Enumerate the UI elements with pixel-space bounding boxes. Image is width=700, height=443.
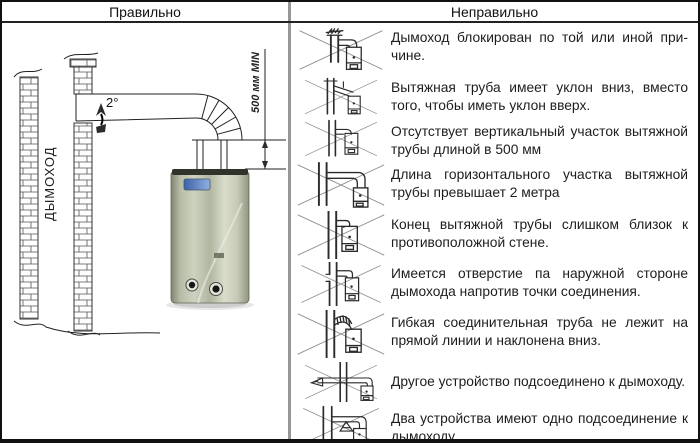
- list-item: Дымоход блокирован по той или иной при­ч…: [291, 25, 698, 75]
- list-item-text: Вытяжная труба имеет уклон вниз, вместо …: [391, 75, 698, 118]
- installation-diagram-sheet: Правильно Неправильно: [0, 0, 700, 443]
- brick-chimney-walls: [14, 53, 160, 335]
- list-item-text: Гибкая соединительная труба не лежит на …: [391, 308, 698, 360]
- chimney-label: ДЫМОХОД: [42, 146, 57, 221]
- list-item: Два устройства имеют одно подсоедине­ние…: [291, 403, 698, 439]
- slope-annotation: 2°: [96, 95, 118, 133]
- blocked-chimney-icon: [294, 27, 388, 73]
- two-devices-one-connection-icon: [294, 405, 388, 440]
- list-item: Вытяжная труба имеет уклон вниз, вместо …: [291, 75, 698, 118]
- missing-vertical-section-icon: [294, 119, 388, 159]
- correct-panel: ДЫМОХОД 2°: [2, 23, 288, 439]
- long-horizontal-section-icon: [294, 161, 388, 209]
- heater-logo: [214, 253, 224, 258]
- heater-display: [184, 179, 210, 190]
- dimension-label: 500 мм MIN: [250, 51, 262, 113]
- list-item: Гибкая соединительная труба не лежит на …: [291, 308, 698, 360]
- angle-label: 2°: [106, 95, 118, 110]
- incorrect-panel: Дымоход блокирован по той или иной при­ч…: [288, 23, 698, 439]
- heater-top-cap: [172, 169, 248, 175]
- downward-slope-pipe-icon: [294, 77, 388, 117]
- water-heater-photo: [166, 169, 254, 310]
- list-item-text: Дымоход блокирован по той или иной при­ч…: [391, 25, 698, 75]
- incorrect-column-header: Неправильно: [288, 2, 698, 21]
- list-item: Конец вытяжной трубы слишком близок к пр…: [291, 210, 698, 260]
- extra-device-connected-icon: [294, 362, 388, 402]
- list-item-text: Длина горизонтального участка вытяжной т…: [391, 160, 698, 210]
- content-area: ДЫМОХОД 2°: [2, 23, 698, 439]
- heater-knob-left: [186, 279, 198, 291]
- dimension-500mm: 500 мм MIN: [244, 49, 286, 169]
- heater-knob-right: [210, 283, 223, 296]
- sagging-flexible-pipe-icon: [294, 310, 388, 358]
- list-item: Имеется отверстие па наружной стороне ды…: [291, 260, 698, 308]
- list-item-text: Два устройства имеют одно подсоедине­ние…: [391, 403, 698, 439]
- list-item-text: Конец вытяжной трубы слишком близок к пр…: [391, 210, 698, 260]
- list-item-text: Другое устройство подсоединено к дымоход…: [391, 360, 698, 403]
- list-item: Другое устройство подсоединено к дымоход…: [291, 360, 698, 403]
- correct-installation-drawing: ДЫМОХОД 2°: [2, 23, 288, 439]
- correct-column-header: Правильно: [2, 2, 288, 21]
- hole-in-chimney-icon: [294, 262, 388, 306]
- list-item: Длина горизонтального участка вытяжной т…: [291, 160, 698, 210]
- column-headers: Правильно Неправильно: [2, 2, 698, 23]
- list-item: Отсутствует вертикальный участок вытяжно…: [291, 118, 698, 160]
- pipe-close-to-wall-icon: [294, 211, 388, 259]
- list-item-text: Имеется отверстие па наружной стороне ды…: [391, 260, 698, 308]
- list-item-text: Отсутствует вертикальный участок вытяжно…: [391, 118, 698, 160]
